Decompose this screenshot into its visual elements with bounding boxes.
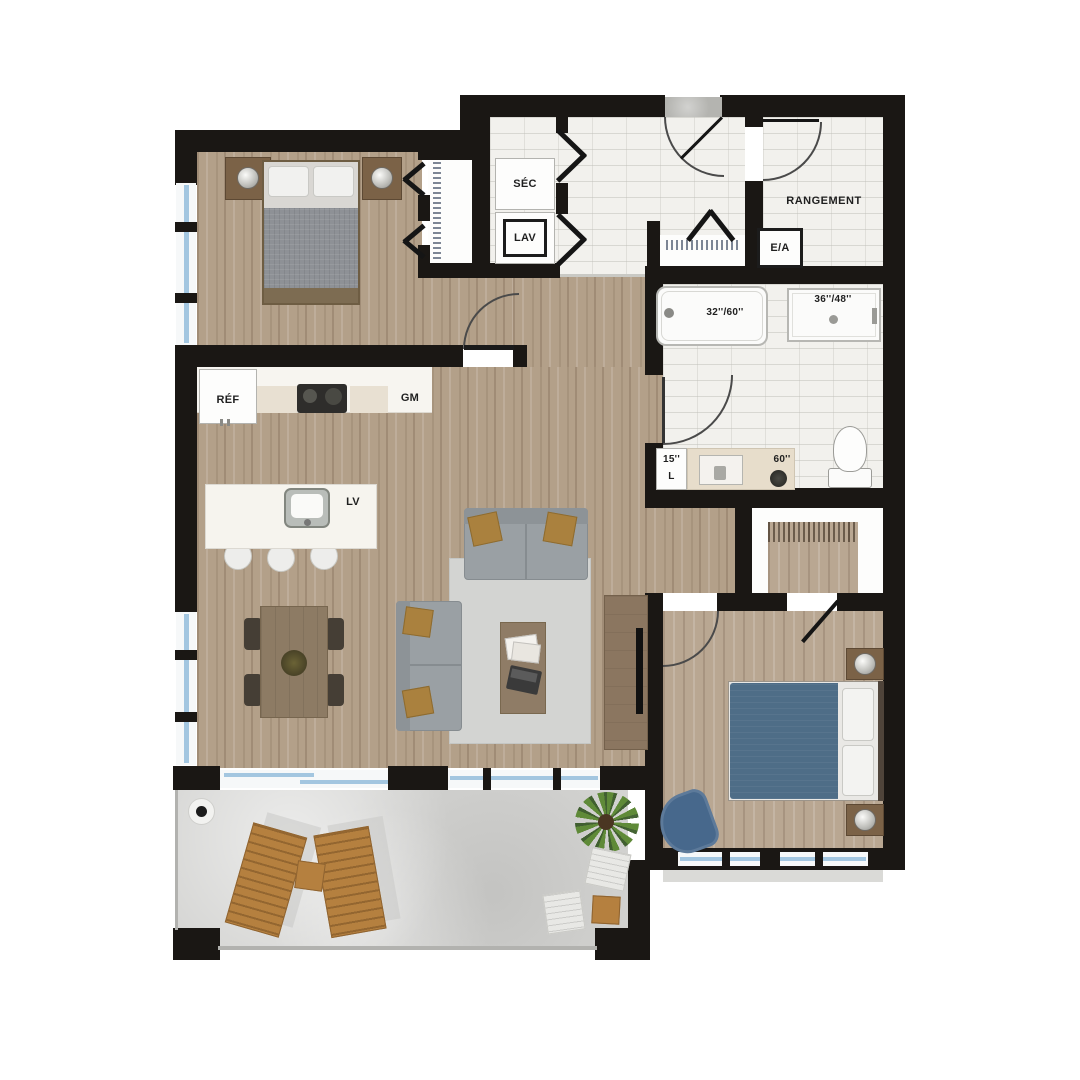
sink-faucet-icon [304, 519, 311, 526]
throw-pillow [402, 606, 434, 638]
sliding-door-glazing [300, 780, 388, 784]
stool-icon [770, 470, 787, 487]
window-mullion [175, 222, 197, 232]
linen-width-label: 15'' [656, 452, 687, 466]
magazines [511, 641, 541, 663]
storage-room-label: RANGEMENT [765, 192, 883, 210]
hallway-floor [513, 277, 645, 369]
fridge-handle-icon [220, 419, 223, 426]
window-mullion [760, 850, 780, 868]
window-mullion [483, 768, 491, 790]
dining-chair [326, 674, 344, 706]
terrace-post [173, 766, 220, 790]
closet-rod-icon [433, 162, 441, 260]
kitchen-cabinet [350, 386, 388, 413]
window-glazing [184, 614, 189, 763]
tv-icon [636, 628, 643, 714]
pillow [842, 688, 874, 741]
wall [418, 195, 430, 221]
toilet-bowl [833, 426, 867, 472]
throw-pillow [467, 511, 503, 547]
lamp-icon [854, 653, 876, 675]
patio-table [591, 895, 620, 924]
wall [837, 593, 883, 611]
wall [868, 848, 905, 870]
throw-pillow [543, 512, 578, 547]
table-centerpiece [281, 650, 307, 676]
window-mullion [815, 850, 823, 868]
burner-icon [325, 388, 342, 405]
lamp-icon [854, 809, 876, 831]
floor-transition [560, 274, 645, 277]
bed-footboard [264, 288, 358, 303]
pillow [842, 745, 874, 796]
corridor-floor [645, 508, 735, 593]
bedroom-2-window-sill [663, 870, 883, 882]
kitchen-cabinet [257, 386, 297, 413]
floor-drain-center [196, 806, 207, 817]
wall [735, 508, 752, 593]
vanity-faucet-icon [872, 308, 877, 324]
dishwasher-label: LV [338, 494, 368, 510]
wall [175, 130, 197, 185]
dryer-label: SÉC [495, 158, 555, 210]
bathtub-faucet-icon [664, 308, 674, 318]
patio-chair [542, 890, 585, 935]
window-mullion [722, 850, 730, 868]
side-table [294, 860, 326, 892]
bathroom-door-leaf [662, 377, 665, 443]
pillow [268, 166, 309, 197]
wall [628, 860, 650, 960]
patio-chair [584, 846, 631, 891]
pantry-label: GM [393, 390, 427, 406]
floor-plan: SÉC LAV RANGEMENT E/A 32''/60'' 36''/48'… [0, 0, 1080, 1080]
wall [645, 266, 883, 284]
terrace-edge [218, 946, 597, 950]
vanity-label: 36''/48'' [800, 292, 866, 306]
makeup-counter-label: 60'' [764, 453, 800, 466]
wall [556, 183, 568, 214]
burner-icon [303, 389, 317, 403]
entry-closet-rod-icon [666, 240, 738, 250]
terrace-post [600, 766, 663, 790]
bedroom-1-door-leaf [464, 345, 514, 350]
window-mullion [175, 293, 197, 303]
lamp-icon [237, 167, 259, 189]
throw-pillow [402, 686, 434, 718]
bathtub-label: 32''/60'' [692, 304, 758, 320]
window-glazing [450, 776, 598, 780]
plant-pot [598, 814, 614, 830]
wall [645, 488, 883, 508]
wall [175, 345, 197, 612]
sliding-door-glazing [224, 773, 314, 777]
wall [175, 345, 463, 367]
air-exchanger-label: E/A [757, 228, 803, 268]
linen-letter-label: L [656, 469, 687, 483]
lamp-icon [371, 167, 393, 189]
fridge-label: RÉF [199, 392, 257, 408]
walkin-rod-icon [768, 522, 858, 542]
vanity-drain-icon [829, 315, 838, 324]
duvet [264, 208, 358, 290]
terrace-edge [175, 790, 178, 930]
dining-chair [326, 618, 344, 650]
wall [745, 117, 763, 127]
storage-door-leaf [763, 119, 819, 122]
bed-headboard [878, 681, 884, 801]
sofa-cushion-line [525, 524, 527, 580]
duvet [730, 683, 838, 799]
window-mullion [553, 768, 561, 790]
terrace-post [173, 928, 220, 960]
pillow [313, 166, 354, 197]
fridge-handle-icon [227, 419, 230, 426]
wall [472, 117, 490, 277]
window-glazing [184, 185, 189, 343]
sofa-cushion-line [410, 664, 462, 666]
washer-label: LAV [495, 212, 555, 264]
wall [418, 263, 560, 278]
wall [717, 593, 787, 611]
terrace-post [388, 766, 448, 790]
window-mullion [175, 650, 197, 660]
entry-mat [665, 97, 722, 117]
sink-basin [291, 494, 323, 518]
wall [883, 95, 905, 870]
makeup-chair-icon [714, 466, 726, 480]
window-mullion [175, 712, 197, 722]
wall [720, 95, 905, 117]
